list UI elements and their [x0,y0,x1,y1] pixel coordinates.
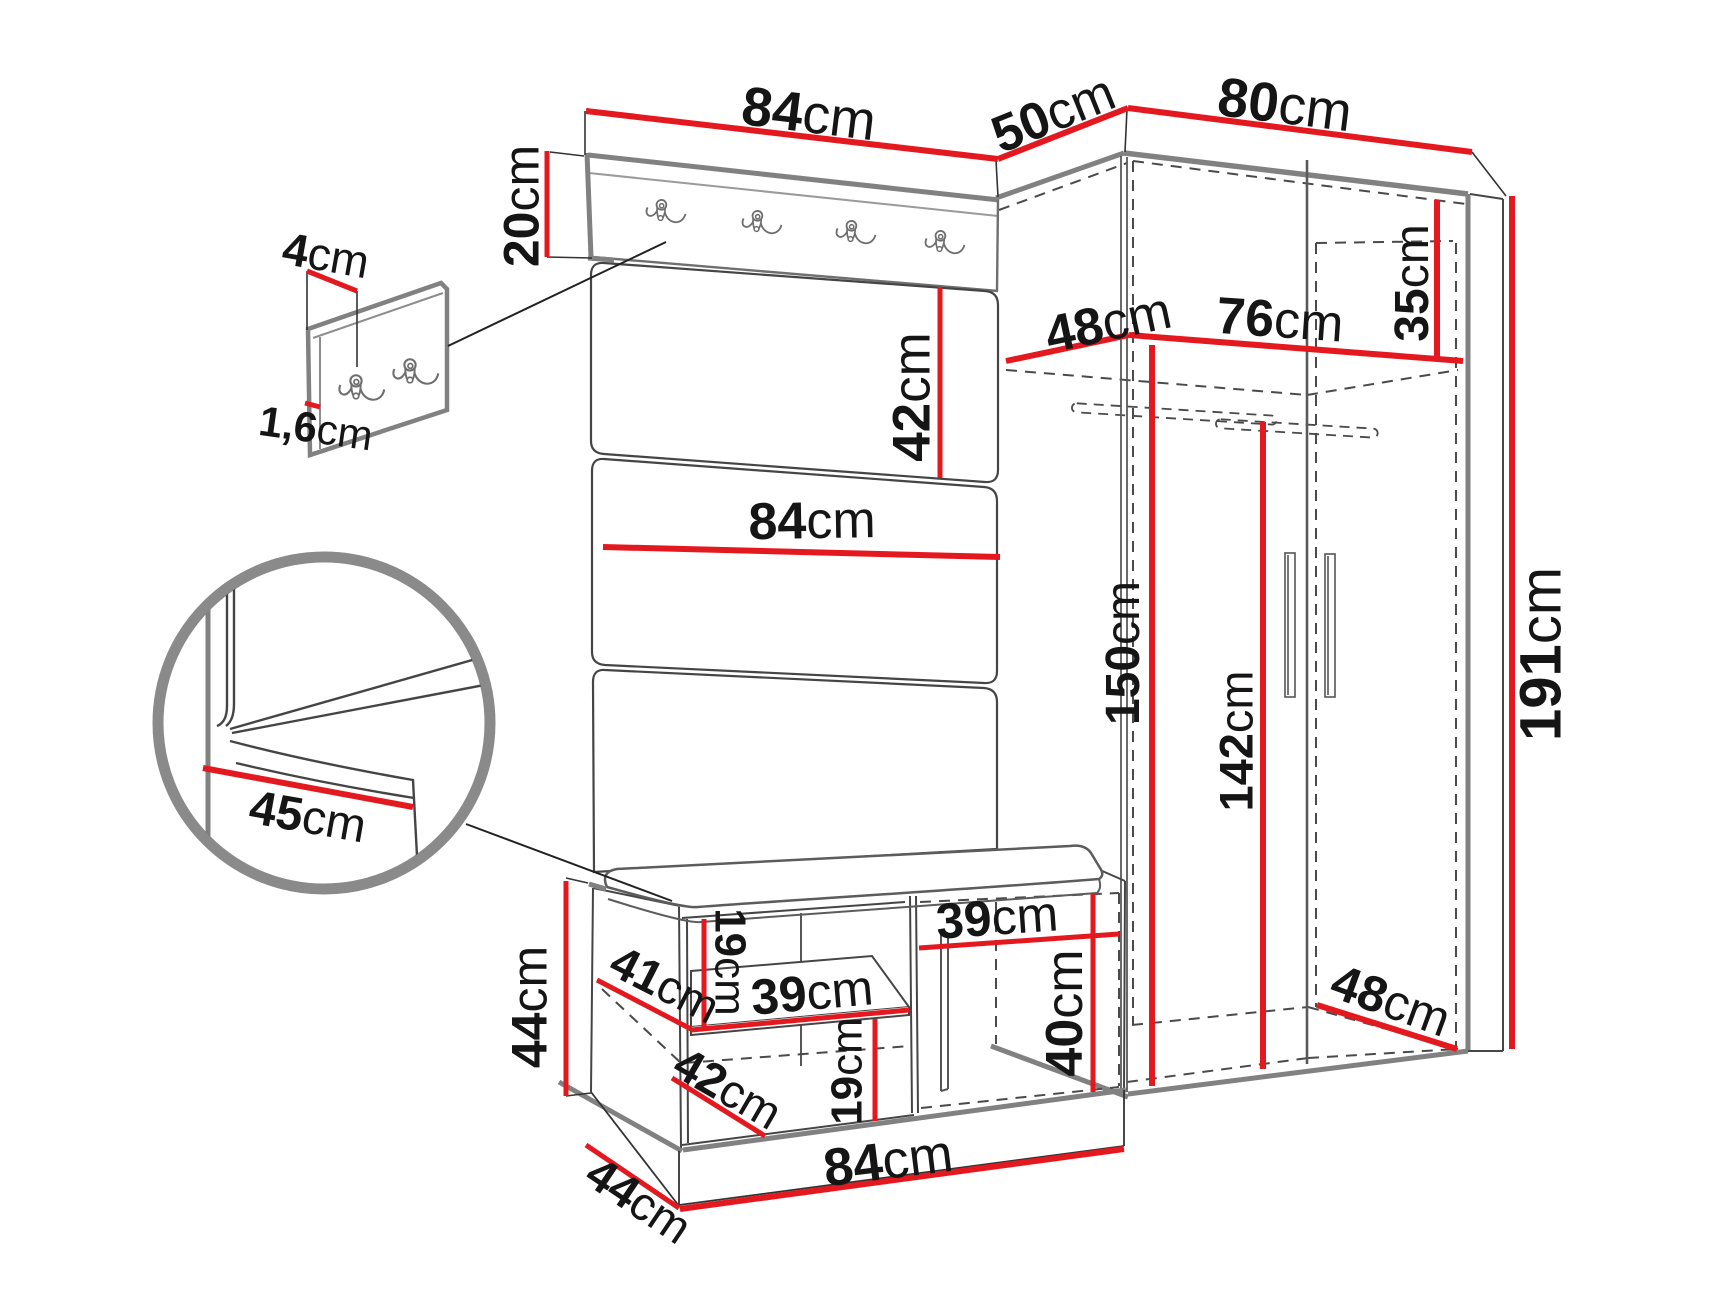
svg-text:80cm: 80cm [1214,65,1355,143]
svg-text:44cm: 44cm [577,1146,702,1254]
svg-text:4cm: 4cm [279,222,374,288]
svg-text:19cm: 19cm [706,908,755,1016]
svg-text:39cm: 39cm [934,885,1060,949]
svg-text:39cm: 39cm [749,959,876,1025]
svg-text:40cm: 40cm [1036,949,1094,1076]
svg-text:42cm: 42cm [883,332,942,462]
svg-text:142cm: 142cm [1209,670,1262,811]
svg-text:19cm: 19cm [822,1017,871,1125]
svg-text:84cm: 84cm [820,1124,956,1198]
svg-text:84cm: 84cm [738,74,879,152]
svg-text:191cm: 191cm [1508,567,1573,741]
svg-text:50cm: 50cm [984,63,1124,164]
svg-text:44cm: 44cm [502,946,558,1068]
svg-text:35cm: 35cm [1386,224,1439,341]
svg-text:150cm: 150cm [1097,581,1150,725]
svg-text:76cm: 76cm [1214,287,1345,354]
svg-text:48cm: 48cm [1324,953,1458,1047]
svg-text:20cm: 20cm [494,145,550,267]
svg-text:42cm: 42cm [665,1036,791,1139]
svg-text:84cm: 84cm [748,491,876,551]
svg-text:48cm: 48cm [1040,282,1176,365]
